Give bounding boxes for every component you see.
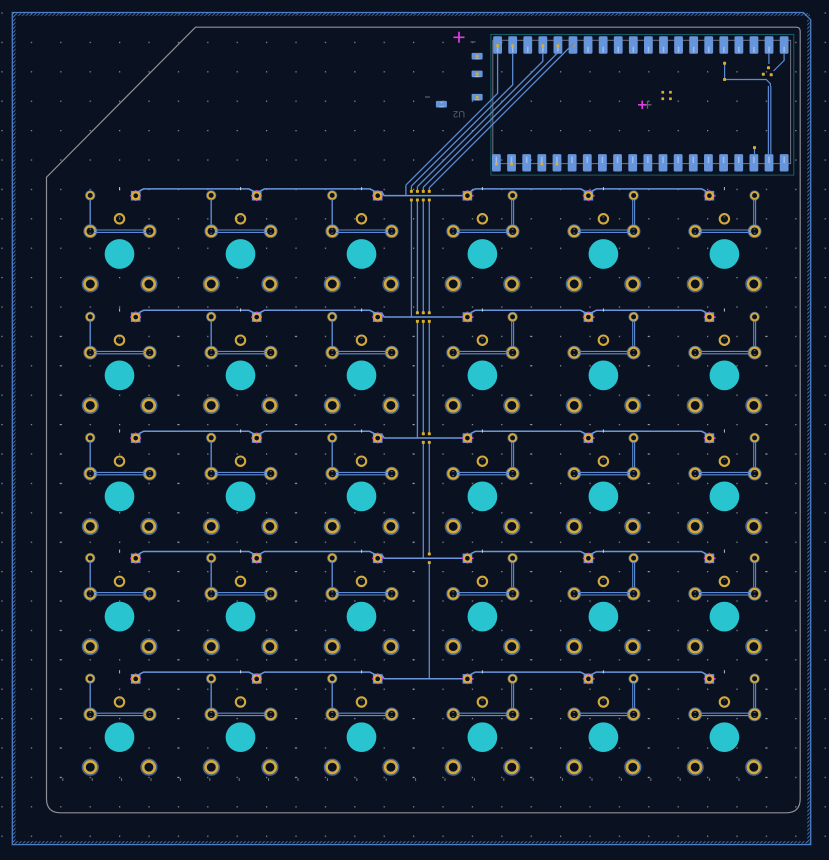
svg-text:U2: U2 <box>453 108 465 119</box>
